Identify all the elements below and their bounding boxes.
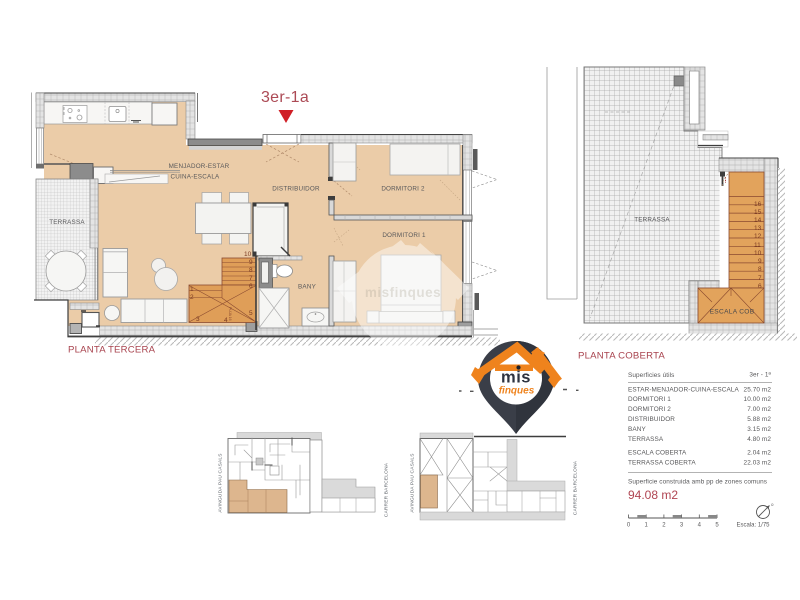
svg-text:TERRASSA: TERRASSA	[49, 219, 85, 226]
svg-text:DISTRIBUIDOR: DISTRIBUIDOR	[272, 186, 320, 193]
svg-text:BANY: BANY	[628, 426, 646, 433]
svg-text:5: 5	[249, 310, 253, 317]
svg-text:4: 4	[224, 317, 228, 324]
svg-text:TERRASSA: TERRASSA	[628, 436, 664, 443]
svg-text:3: 3	[196, 316, 200, 323]
svg-text:CARRER BARCELONA: CARRER BARCELONA	[384, 462, 390, 517]
svg-text:13: 13	[754, 225, 762, 232]
svg-text:AVINGUDA PAU CASALS: AVINGUDA PAU CASALS	[218, 453, 224, 512]
svg-text:3.15 m2: 3.15 m2	[747, 426, 771, 433]
svg-text:DORMITORI 1: DORMITORI 1	[628, 396, 671, 403]
svg-text:misfinques: misfinques	[365, 285, 441, 300]
svg-text:DORMITORI 2: DORMITORI 2	[628, 406, 671, 413]
svg-text:Superficie construida amb pp d: Superficie construida amb pp de zones co…	[628, 479, 767, 486]
svg-text:9: 9	[758, 258, 762, 265]
svg-text:7: 7	[249, 275, 253, 282]
svg-text:1: 1	[190, 286, 194, 293]
svg-text:14: 14	[754, 217, 762, 224]
svg-text:Superficies útils: Superficies útils	[628, 372, 674, 379]
svg-text:AVINGUDA PAU CASALS: AVINGUDA PAU CASALS	[410, 453, 416, 512]
svg-text:9: 9	[249, 259, 253, 266]
svg-text:10: 10	[244, 251, 252, 258]
svg-text:8: 8	[758, 266, 762, 273]
svg-text:CARRER BARCELONA: CARRER BARCELONA	[573, 460, 579, 515]
svg-text:DISTRIBUIDOR: DISTRIBUIDOR	[628, 416, 675, 423]
svg-text:TERRASSA COBERTA: TERRASSA COBERTA	[628, 460, 696, 467]
svg-text:7: 7	[758, 275, 762, 282]
svg-text:DORMITORI 1: DORMITORI 1	[382, 232, 426, 239]
svg-text:10: 10	[754, 250, 762, 257]
svg-text:ESCALA COBERTA: ESCALA COBERTA	[628, 450, 687, 457]
svg-text:4.80 m2: 4.80 m2	[747, 436, 771, 443]
svg-text:PUJA 16: PUJA 16	[228, 307, 232, 321]
svg-text:3er-1a: 3er-1a	[261, 89, 309, 106]
svg-text:CUINA-ESCALA: CUINA-ESCALA	[171, 174, 221, 181]
svg-text:mis: mis	[501, 369, 531, 387]
svg-text:ESCALA COB: ESCALA COB	[710, 309, 755, 316]
svg-text:25.70 m2: 25.70 m2	[744, 387, 772, 394]
svg-text:Escala: 1/75: Escala: 1/75	[736, 523, 770, 529]
svg-text:94.08 m2: 94.08 m2	[628, 488, 678, 502]
svg-text:BANY: BANY	[298, 284, 317, 291]
svg-text:5.88 m2: 5.88 m2	[747, 416, 771, 423]
svg-text:ESTAR-MENJADOR-CUINA-ESCALA: ESTAR-MENJADOR-CUINA-ESCALA	[628, 387, 740, 394]
svg-text:DORMITORI 2: DORMITORI 2	[381, 186, 425, 193]
svg-text:2.04 m2: 2.04 m2	[747, 450, 771, 457]
svg-text:MENJADOR-ESTAR: MENJADOR-ESTAR	[169, 163, 230, 170]
svg-text:7.00 m2: 7.00 m2	[747, 406, 771, 413]
svg-text:6: 6	[249, 283, 253, 290]
svg-text:8: 8	[249, 267, 253, 274]
svg-text:3er - 1ª: 3er - 1ª	[749, 372, 771, 379]
svg-text:11: 11	[754, 242, 761, 249]
svg-text:PLANTA COBERTA: PLANTA COBERTA	[578, 351, 665, 362]
svg-text:12: 12	[754, 233, 762, 240]
svg-text:10.00 m2: 10.00 m2	[744, 396, 772, 403]
svg-text:16: 16	[754, 201, 762, 208]
svg-text:TERRASSA: TERRASSA	[634, 217, 670, 224]
svg-text:2: 2	[190, 294, 194, 301]
svg-text:22.03 m2: 22.03 m2	[744, 460, 772, 467]
svg-text:15: 15	[754, 209, 762, 216]
svg-text:finques: finques	[499, 386, 535, 397]
svg-text:PLANTA TERCERA: PLANTA TERCERA	[68, 345, 156, 356]
